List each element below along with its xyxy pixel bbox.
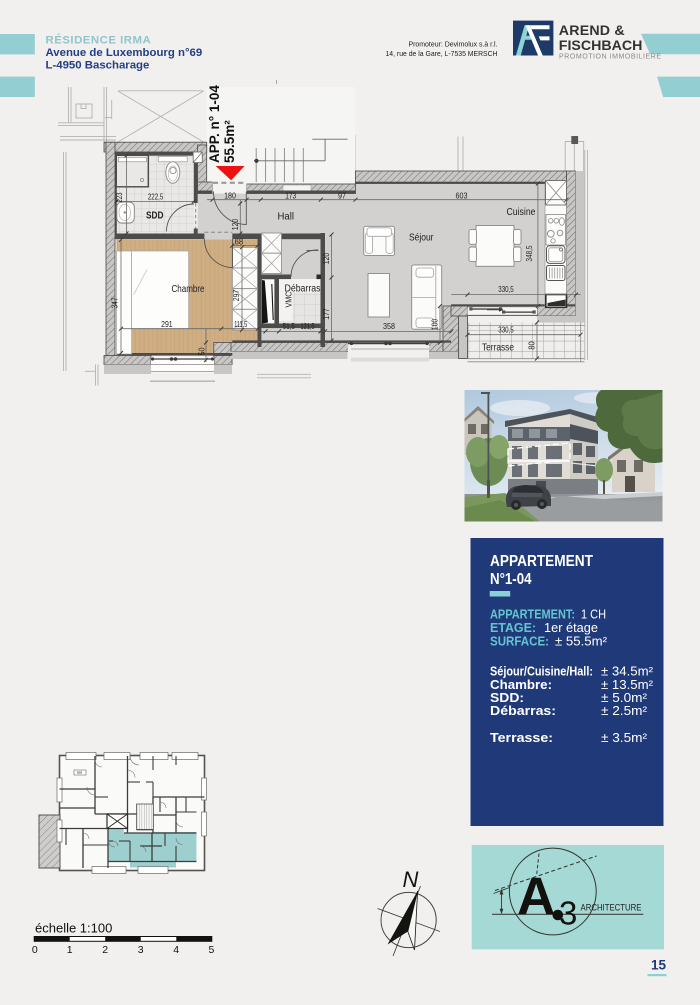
svg-text:330,5: 330,5 xyxy=(498,325,514,334)
svg-text:APPARTEMENT: APPARTEMENT xyxy=(490,553,593,570)
svg-text:ARCHITECTURE: ARCHITECTURE xyxy=(581,903,642,913)
svg-text:échelle 1:100: échelle 1:100 xyxy=(35,921,112,936)
svg-text:223: 223 xyxy=(115,192,124,202)
svg-text:Chambre: Chambre xyxy=(172,284,205,295)
svg-text:Terrasse:: Terrasse: xyxy=(490,730,553,745)
svg-text:A: A xyxy=(517,868,555,927)
svg-text:173: 173 xyxy=(285,191,296,200)
svg-text:± 2.5m²: ± 2.5m² xyxy=(601,703,648,718)
svg-text:348,5: 348,5 xyxy=(525,245,534,261)
svg-text:1: 1 xyxy=(67,944,73,956)
svg-text:Débarras:: Débarras: xyxy=(490,703,556,718)
svg-text:Cuisine: Cuisine xyxy=(507,207,536,218)
svg-text:180: 180 xyxy=(224,191,236,200)
svg-text:50: 50 xyxy=(197,347,206,355)
svg-text:358: 358 xyxy=(383,322,395,331)
svg-text:2: 2 xyxy=(102,944,108,956)
svg-text:AREND &: AREND & xyxy=(559,23,625,39)
svg-text:N°1-04: N°1-04 xyxy=(490,571,532,588)
svg-text:APP. n° 1-04: APP. n° 1-04 xyxy=(207,85,222,163)
svg-text:120: 120 xyxy=(231,218,240,230)
svg-text:51,5: 51,5 xyxy=(283,322,295,331)
svg-text:L-4950 Bascharage: L-4950 Bascharage xyxy=(46,59,150,71)
svg-text:± 55.5m²: ± 55.5m² xyxy=(555,634,608,649)
svg-text:VMC: VMC xyxy=(284,292,294,308)
svg-text:Promoteur: Devimolux s.à r.l.: Promoteur: Devimolux s.à r.l. xyxy=(409,40,498,49)
svg-text:SDD: SDD xyxy=(146,210,164,222)
svg-text:330,5: 330,5 xyxy=(498,285,514,294)
svg-text:Terrasse: Terrasse xyxy=(482,343,514,354)
svg-text:15: 15 xyxy=(651,958,667,973)
svg-text:Séjour: Séjour xyxy=(409,233,434,244)
svg-text:291: 291 xyxy=(161,320,173,329)
svg-text:121,5: 121,5 xyxy=(301,322,315,331)
svg-text:RÉSIDENCE IRMA: RÉSIDENCE IRMA xyxy=(46,34,152,47)
svg-text:0: 0 xyxy=(32,944,38,956)
svg-text:FISCHBACH: FISCHBACH xyxy=(559,38,643,54)
svg-text:222,5: 222,5 xyxy=(148,193,164,202)
svg-text:Avenue de Luxembourg n°69: Avenue de Luxembourg n°69 xyxy=(46,47,203,59)
svg-text:55.5m²: 55.5m² xyxy=(222,120,237,163)
svg-text:N: N xyxy=(403,867,419,892)
svg-text:3: 3 xyxy=(138,944,144,956)
svg-text:347: 347 xyxy=(111,297,120,308)
svg-text:PROMOTION IMMOBILIERE: PROMOTION IMMOBILIERE xyxy=(559,54,662,61)
svg-text:120: 120 xyxy=(322,252,331,264)
svg-text:297: 297 xyxy=(232,289,241,301)
svg-text:68: 68 xyxy=(235,237,244,246)
svg-text:80: 80 xyxy=(528,341,537,350)
svg-text:± 3.5m²: ± 3.5m² xyxy=(601,730,648,745)
svg-text:97: 97 xyxy=(338,191,346,200)
svg-text:SURFACE:: SURFACE: xyxy=(490,634,549,649)
svg-text:177: 177 xyxy=(322,308,331,320)
svg-text:603: 603 xyxy=(456,191,468,200)
svg-text:14, rue de la Gare, L-7535 MER: 14, rue de la Gare, L-7535 MERSCH xyxy=(386,49,498,58)
svg-text:100: 100 xyxy=(430,318,439,330)
svg-text:5: 5 xyxy=(208,944,214,956)
svg-text:Hall: Hall xyxy=(278,212,295,223)
svg-text:111,5: 111,5 xyxy=(234,320,247,329)
svg-text:4: 4 xyxy=(173,944,179,956)
